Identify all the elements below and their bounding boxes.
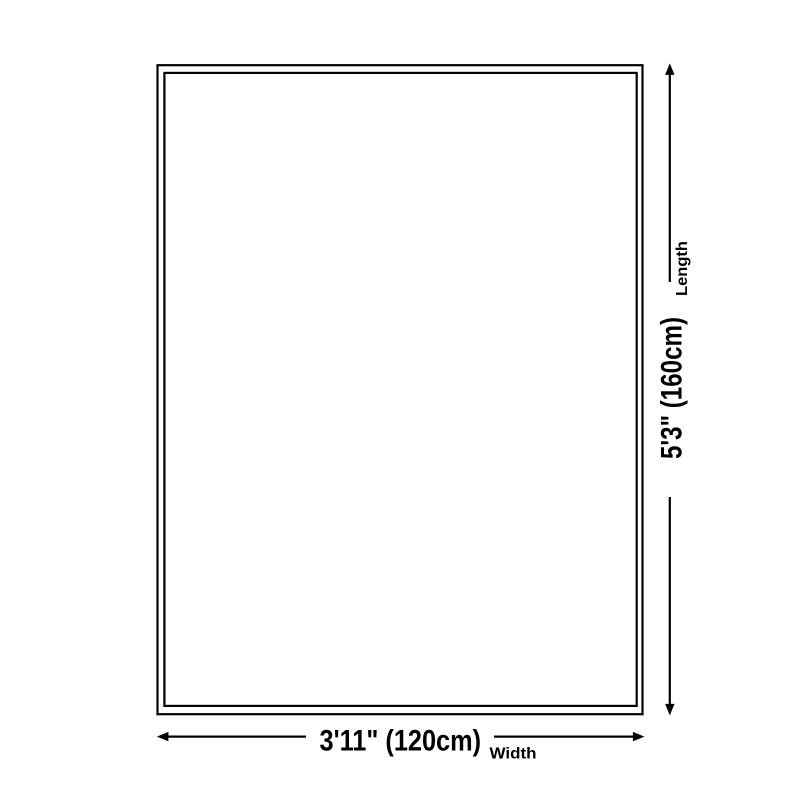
svg-text:5'3" (160cm): 5'3" (160cm) <box>655 317 688 459</box>
svg-text:Length: Length <box>674 241 691 296</box>
svg-text:Width: Width <box>490 745 537 762</box>
svg-text:3'11" (120cm): 3'11" (120cm) <box>320 725 482 758</box>
